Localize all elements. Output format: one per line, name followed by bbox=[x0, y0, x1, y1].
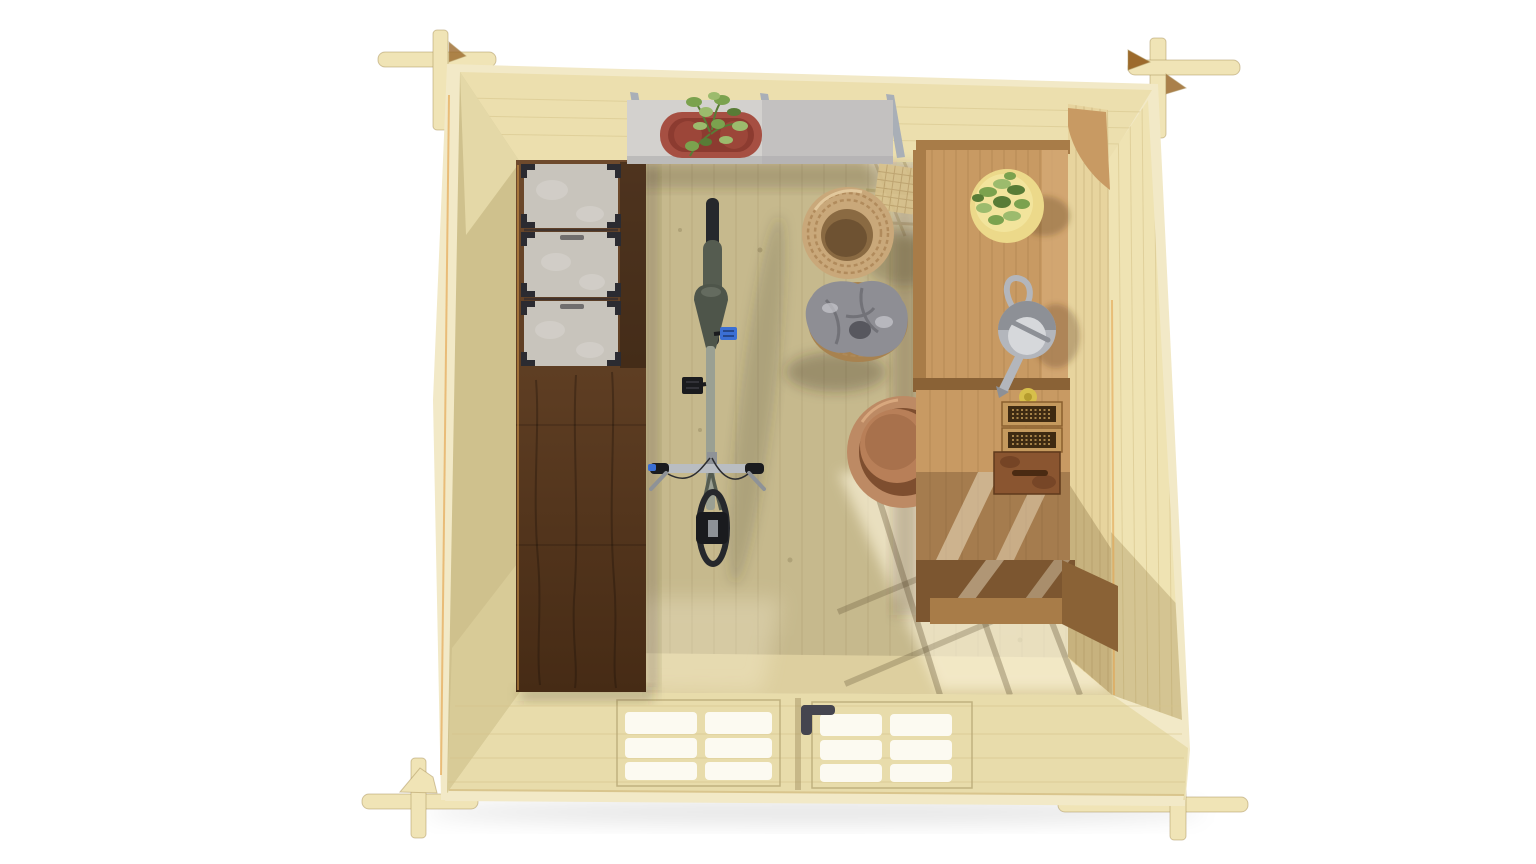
door-pane bbox=[820, 764, 882, 782]
gray-storage-box bbox=[524, 164, 618, 228]
bike-stand-clamp bbox=[708, 520, 718, 537]
potting-bench bbox=[913, 104, 1118, 695]
shelf-shadow bbox=[640, 164, 896, 188]
front-wall-with-glazed-double-doors bbox=[445, 692, 1188, 806]
door-pane bbox=[705, 762, 772, 780]
box-slot bbox=[560, 304, 584, 309]
gray-blanket bbox=[806, 281, 908, 357]
cabinet-top-strip bbox=[620, 162, 646, 368]
bench-bottom-rail bbox=[930, 598, 1080, 624]
shed-render-canvas bbox=[0, 0, 1536, 864]
box-slot bbox=[560, 235, 584, 240]
door-pane bbox=[890, 740, 952, 760]
door-pane bbox=[820, 714, 882, 736]
bench-left-rail bbox=[913, 150, 926, 378]
twine-ball-center bbox=[1024, 393, 1032, 401]
door-pane bbox=[705, 738, 772, 758]
door-pane bbox=[820, 740, 882, 760]
door-pane bbox=[890, 714, 952, 736]
shelf-shade bbox=[762, 100, 893, 164]
door-pane bbox=[625, 712, 697, 734]
gray-storage-box bbox=[524, 232, 618, 297]
bench-mid-gap bbox=[913, 378, 1070, 392]
rusty-box-slot bbox=[1012, 470, 1048, 476]
gray-storage-boxes bbox=[521, 164, 621, 366]
right-pedal bbox=[720, 327, 737, 340]
yellow-dish-with-plant bbox=[970, 169, 1044, 243]
dark-walnut-storage-cabinet bbox=[516, 160, 646, 692]
shed-render bbox=[0, 0, 1536, 864]
wall-mounted-shelf bbox=[627, 92, 905, 164]
wicker-basket bbox=[802, 187, 894, 279]
right-door bbox=[812, 702, 972, 788]
door-pane bbox=[890, 764, 952, 782]
door-center-seam bbox=[795, 698, 801, 790]
saddle-highlight bbox=[701, 287, 721, 297]
rusty-metal-box bbox=[994, 452, 1060, 494]
cabinet-shadow bbox=[646, 165, 658, 690]
door-pane bbox=[625, 762, 697, 780]
door-pane bbox=[705, 712, 772, 734]
door-pane bbox=[625, 738, 697, 758]
left-lever-tip bbox=[648, 464, 656, 471]
left-pedal bbox=[682, 377, 703, 394]
